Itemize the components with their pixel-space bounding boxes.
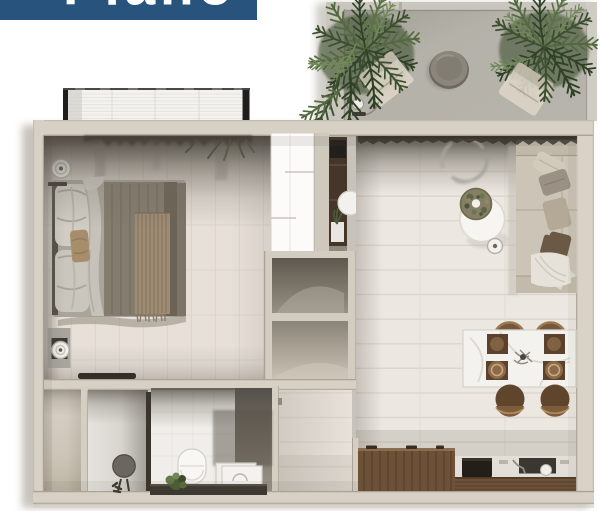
svg-text:Plano: Plano [63,0,237,17]
